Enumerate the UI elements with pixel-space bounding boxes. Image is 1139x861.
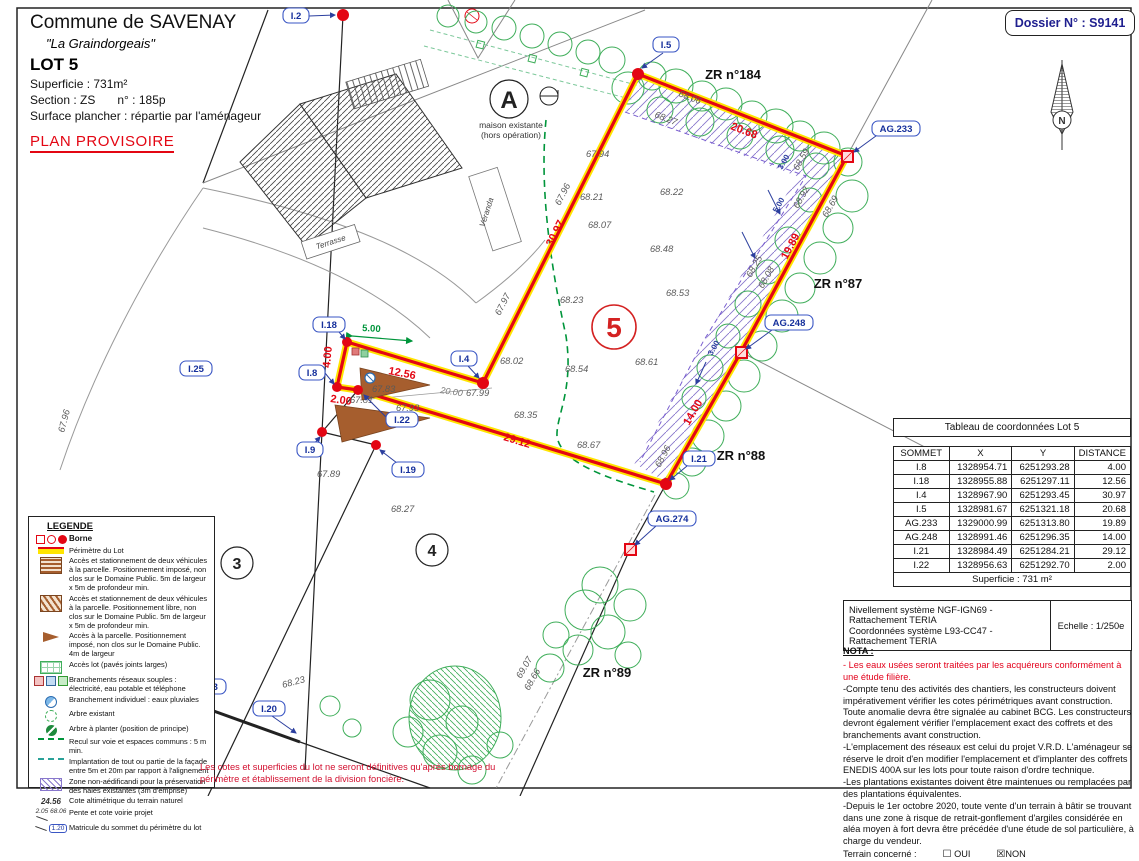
svg-text:68.35: 68.35	[514, 410, 538, 420]
parcel-a-label: A	[500, 87, 517, 114]
dossier-number-box: Dossier N° : S9141	[1005, 10, 1135, 36]
svg-text:68.61: 68.61	[635, 357, 658, 367]
table-row: I.211328984.496251284.2129.12	[894, 545, 1131, 559]
recul-5m-line	[544, 120, 654, 492]
svg-text:67.89: 67.89	[317, 469, 340, 479]
coordonnees-line: Coordonnées système L93-CC47 - Rattachem…	[849, 626, 1045, 646]
legend-item-recul: Recul sur voie et espaces communs : 5 m …	[33, 737, 210, 755]
marker-ag248: AG.248	[773, 318, 806, 329]
svg-text:67.99: 67.99	[466, 388, 489, 398]
lot-title: LOT 5	[30, 55, 330, 75]
north-compass-icon: N	[1051, 60, 1073, 150]
survey-reference-box: Nivellement système NGF-IGN69 - Rattache…	[843, 600, 1132, 651]
svg-text:68.22: 68.22	[660, 187, 684, 197]
table-row: AG.2331329000.996251313.8019.89	[894, 517, 1131, 531]
legend-item-arbre-existant: Arbre existant	[33, 709, 210, 722]
legend-item-acces-parcelle: Accès à la parcelle. Positionnement impo…	[33, 631, 210, 658]
lieu-dit: "La Graindorgeais"	[46, 36, 330, 51]
setback-dashed-icon	[38, 738, 64, 740]
legend-item-implantation: Implantation de tout ou partie de la faç…	[33, 757, 210, 775]
svg-text:68.07: 68.07	[588, 220, 612, 230]
marker-i18: I.18	[321, 320, 337, 331]
marker-i19: I.19	[400, 465, 416, 476]
superficie-line: Superficie : 731m²	[30, 77, 330, 91]
svg-text:67.83: 67.83	[372, 384, 396, 394]
lot5-number-label: 5	[606, 312, 622, 343]
house-caption: maison existante (hors opération)	[479, 120, 543, 140]
borne-circle-icon	[47, 535, 56, 544]
svg-text:67.97: 67.97	[493, 291, 513, 317]
svg-text:68.54: 68.54	[565, 364, 588, 374]
parcel-4-label: 4	[428, 543, 437, 560]
zone-zr87: ZR n°87	[814, 276, 863, 291]
pavers-icon	[40, 661, 62, 674]
table-row: I.51328981.676251321.1820.68	[894, 503, 1131, 517]
checkbox-checked-icon: ☒	[996, 849, 1005, 860]
nota-item: -Depuis le 1er octobre 2020, toute vente…	[843, 801, 1135, 847]
svg-text:68.53: 68.53	[666, 288, 690, 298]
table-row: I.181328955.886251297.1112.56	[894, 475, 1131, 489]
terrain-option-non: ☒NON	[996, 849, 1025, 861]
table-row: AG.2481328991.466251296.3514.00	[894, 531, 1131, 545]
tree-to-plant-icon	[46, 725, 57, 736]
legend-item-cote: 24.56 Cote altimétrique du terrain natur…	[33, 796, 210, 806]
marker-i5: I.5	[661, 40, 672, 51]
nota-item: -Compte tenu des activités des chantiers…	[843, 684, 1135, 741]
terrain-label: Terrain concerné :	[843, 849, 917, 861]
svg-text:68.27: 68.27	[391, 504, 415, 514]
legend-item-borne: Borne	[33, 534, 210, 544]
hedge-blob-hatched	[409, 666, 501, 770]
coordinates-table: Tableau de coordonnées Lot 5 SOMMET X Y …	[893, 418, 1131, 587]
title-block: Commune de SAVENAY "La Graindorgeais" LO…	[30, 12, 330, 153]
marker-i22: I.22	[394, 415, 410, 426]
svg-text:68.23: 68.23	[560, 295, 584, 305]
plan-provisoire-stamp: PLAN PROVISOIRE	[30, 133, 174, 153]
commune-title: Commune de SAVENAY	[30, 12, 330, 34]
table-row: I.221328956.636251292.702.00	[894, 559, 1131, 573]
zone-zr89: ZR n°89	[583, 665, 632, 680]
table-header-row: SOMMET X Y DISTANCE	[894, 447, 1131, 461]
nivellement-line: Nivellement système NGF-IGN69 - Rattache…	[849, 605, 1045, 625]
nota-block: NOTA : - Les eaux usées seront traitées …	[843, 646, 1135, 861]
svg-text:67.96: 67.96	[56, 408, 72, 434]
section-line: Section : ZS	[30, 93, 95, 107]
bornage-disclaimer: Les cotes et superficies du lot ne seron…	[200, 761, 532, 785]
svg-text:68.02: 68.02	[500, 356, 524, 366]
marker-i9: I.9	[305, 445, 316, 456]
marker-i4: I.4	[459, 354, 470, 365]
non-aedificandi-hatch-icon	[40, 778, 62, 791]
legend-item-branchements: Branchements réseaux souples : électrici…	[33, 675, 210, 693]
table-footer-row: Superficie : 731 m²	[894, 573, 1131, 587]
svg-text:67.81: 67.81	[350, 395, 373, 405]
borne-square-icon	[36, 535, 45, 544]
gray-dim-20m: 20.00	[439, 385, 464, 398]
coordinates-table-title: Tableau de coordonnées Lot 5	[893, 418, 1131, 437]
svg-text:29.12: 29.12	[502, 431, 532, 451]
terrain-option-oui: ☐ OUI	[943, 849, 971, 861]
access-free-icon	[40, 595, 62, 612]
zone-zr184: ZR n°184	[705, 67, 762, 82]
legend-item-perimetre: Périmètre du Lot	[33, 546, 210, 555]
legend-title: LEGENDE	[47, 521, 210, 532]
marker-i21: I.21	[691, 454, 708, 465]
svg-text:N: N	[1058, 116, 1065, 127]
legend-item-eaux-pluviales: Branchement individuel : eaux pluviales	[33, 695, 210, 708]
legend-item-pente: 2.05 68.06 Pente et cote voirie projet	[33, 808, 210, 822]
numero-line: n° : 185p	[117, 93, 165, 107]
svg-text:68.48: 68.48	[650, 244, 674, 254]
borne-dot-icon	[58, 535, 67, 544]
svg-text:68.23: 68.23	[281, 674, 307, 690]
table-row: I.41328967.906251293.4530.97	[894, 489, 1131, 503]
parcel-3-label: 3	[233, 556, 242, 573]
plan-sheet: { "header": { "commune": "Commune de SAV…	[0, 0, 1139, 796]
spot-elevation-icon: 24.56	[41, 797, 61, 806]
legend-item-matricule: 1.20 Matricule du sommet du périmètre du…	[33, 823, 210, 833]
elec-box-icon	[34, 676, 44, 686]
green-dim-line	[352, 336, 412, 341]
slope-icon: 2.05 68.06	[33, 808, 69, 822]
marker-ag233: AG.233	[880, 124, 913, 135]
surface-plancher-line: Surface plancher : répartie par l'aménag…	[30, 109, 330, 123]
marker-i20: I.20	[261, 704, 277, 715]
legend-item-zone: Zone non-aédificandi pour la préservatio…	[33, 777, 210, 795]
svg-text:(hors opération): (hors opération)	[481, 130, 541, 140]
table-row: I.81328954.716251293.284.00	[894, 461, 1131, 475]
green-dim-value: 5.00	[362, 323, 381, 335]
access-wedge-icon	[43, 632, 59, 642]
legend-item-acces-libre: Accès et stationnement de deux véhicules…	[33, 594, 210, 630]
zone-zr88: ZR n°88	[717, 448, 766, 463]
checkbox-unchecked-icon: ☐	[943, 849, 952, 860]
legend-panel: LEGENDE Borne Périmètre du Lot Accès et …	[28, 516, 215, 788]
svg-text:68.21: 68.21	[580, 192, 603, 202]
access-imposed-icon	[40, 557, 62, 574]
svg-text:maison existante: maison existante	[479, 120, 543, 130]
eau-box-icon	[46, 676, 56, 686]
legend-item-acces-impose: Accès et stationnement de deux véhicules…	[33, 556, 210, 592]
echelle-cell: Echelle : 1/250e	[1051, 600, 1132, 651]
nota-title: NOTA :	[843, 646, 1135, 657]
marker-i8: I.8	[307, 368, 318, 379]
matricule-box-icon: 1.20	[49, 824, 68, 833]
nota-red-item: - Les eaux usées seront traitées par les…	[843, 660, 1135, 683]
tel-box-icon	[58, 676, 68, 686]
marker-ag274: AG.274	[656, 514, 689, 525]
svg-text:4.00: 4.00	[321, 346, 335, 368]
rainwater-icon	[45, 696, 57, 708]
existing-tree-icon	[45, 710, 57, 722]
legend-item-arbre-planter: Arbre à planter (position de principe)	[33, 724, 210, 736]
nota-item: -L'emplacement des réseaux est celui du …	[843, 742, 1135, 776]
facade-dashed-icon	[38, 758, 64, 760]
veranda-outline	[469, 167, 522, 250]
perimeter-line-icon	[38, 547, 64, 554]
leader-arrow-icon	[35, 826, 47, 831]
nota-item: -Les plantations existantes doivent être…	[843, 777, 1135, 800]
legend-item-paves: Accès lot (pavés joints larges)	[33, 660, 210, 674]
svg-text:68.67: 68.67	[577, 440, 601, 450]
svg-text:67.94: 67.94	[586, 149, 609, 159]
marker-i25: I.25	[188, 364, 205, 375]
